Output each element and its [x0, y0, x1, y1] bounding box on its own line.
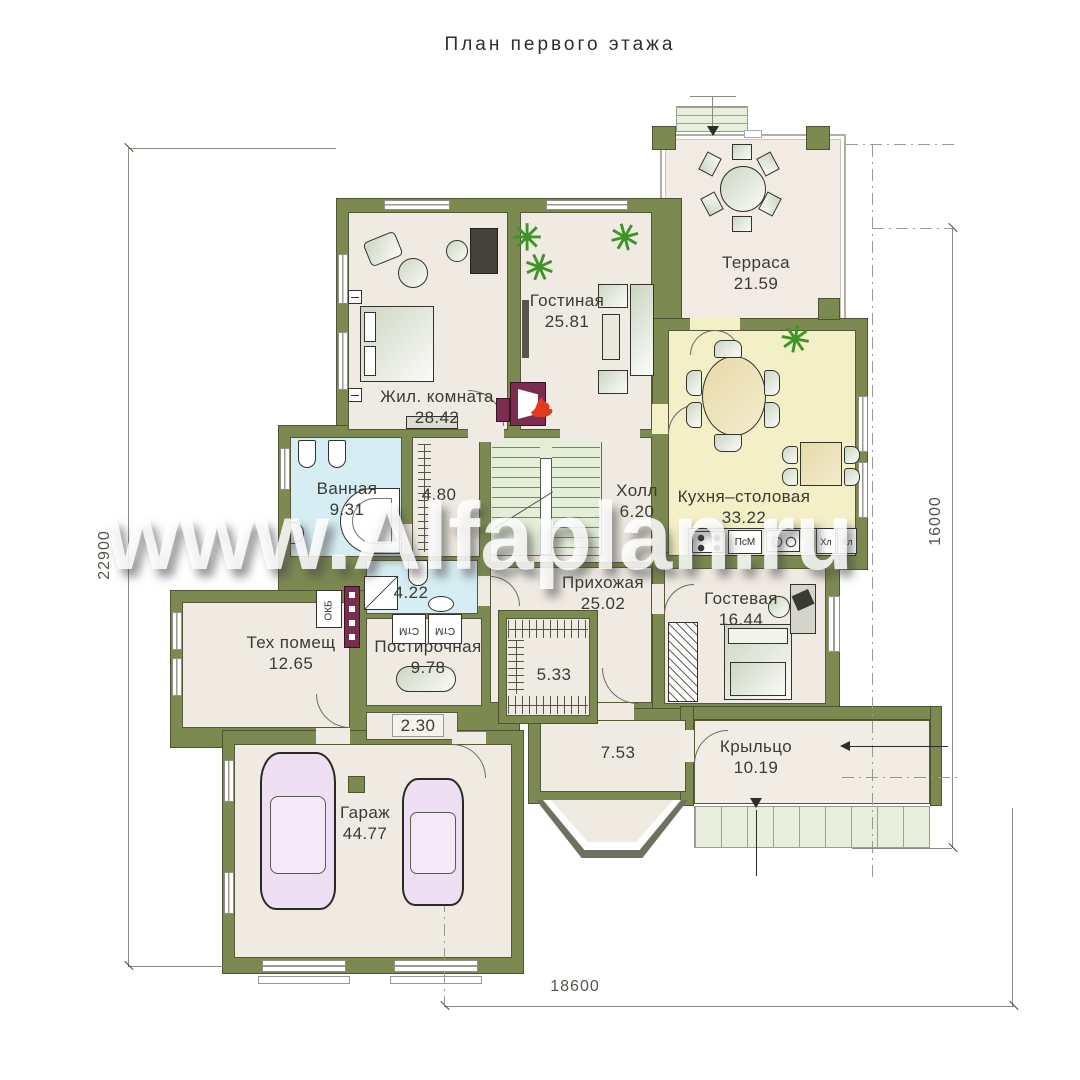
dim-ext-line — [852, 848, 952, 849]
chair — [844, 446, 860, 464]
room-name: Тех помещ — [221, 632, 361, 653]
chair — [764, 370, 780, 396]
window — [172, 658, 182, 696]
chair — [714, 434, 742, 452]
room-name: Гараж — [295, 802, 435, 823]
terrace-column — [818, 298, 840, 320]
arrow-down-icon — [750, 798, 762, 808]
nightstand — [348, 290, 362, 304]
coat-rack — [508, 620, 588, 638]
garage-door-opening — [394, 960, 478, 972]
room-name: Крыльцо — [686, 736, 826, 757]
room-area: 21.59 — [686, 273, 826, 294]
room-label-porch: Крыльцо 10.19 — [686, 736, 826, 779]
chair — [732, 216, 752, 232]
terrace-column — [652, 126, 676, 150]
nightstand — [348, 388, 362, 402]
room-area: 44.77 — [295, 823, 435, 844]
room-label-tambour-753: 7.53 — [588, 742, 648, 763]
bidet — [328, 440, 346, 468]
room-name: Постирочная — [358, 636, 498, 657]
dim-label-bottom: 18600 — [515, 978, 635, 996]
dim-ext-line — [128, 148, 336, 149]
room-area: 25.02 — [543, 593, 663, 614]
room-area: 12.65 — [221, 653, 361, 674]
roof-overhang-line — [842, 777, 960, 778]
door-gap — [452, 732, 486, 744]
porch-steps — [694, 806, 930, 848]
porch-wall-top — [680, 706, 942, 720]
guest-bench — [730, 662, 786, 696]
small-table — [800, 442, 842, 486]
room-label-living: Гостиная 25.81 — [497, 290, 637, 333]
dim-line-bottom — [444, 1006, 1014, 1007]
window — [224, 872, 234, 914]
room-name: Жил. комната — [367, 386, 507, 407]
chair — [764, 402, 780, 428]
chair — [686, 370, 702, 396]
terrace-entry-line — [712, 96, 713, 130]
window — [338, 332, 348, 390]
door-gap — [652, 404, 668, 434]
plant-icon: ✳ — [777, 320, 813, 361]
chimney-vent — [349, 592, 355, 598]
terrace-deck — [660, 134, 846, 324]
roof-overhang-line — [872, 228, 952, 229]
boiler: ОКБ — [316, 590, 342, 628]
chair — [714, 340, 742, 358]
roof-overhang-line — [846, 144, 954, 145]
dim-ext-line — [128, 966, 224, 967]
room-area: 5.33 — [524, 664, 584, 685]
room-area: 16.44 — [671, 609, 811, 630]
arrow-left-icon — [840, 741, 850, 751]
room-label-tech: Тех помещ 12.65 — [221, 632, 361, 675]
flame-icon — [528, 390, 556, 420]
window — [172, 612, 182, 650]
pillow — [364, 346, 376, 376]
dim-ext-line — [1012, 808, 1013, 1006]
terrace-entry-line — [690, 96, 736, 97]
room-label-garage: Гараж 44.77 — [295, 802, 435, 845]
window — [546, 200, 628, 210]
door-gap — [690, 318, 740, 330]
porch-wall-right — [930, 706, 942, 806]
chair — [782, 446, 798, 464]
room-label-bedroom: Жил. комната 28.42 — [367, 386, 507, 429]
window — [384, 200, 450, 210]
porch-entry-line — [850, 746, 948, 747]
room-label-terrace: Терраса 21.59 — [686, 252, 826, 295]
floor-plan: План первого этажа — [0, 0, 1080, 1080]
room-area: 28.42 — [367, 407, 507, 428]
porch-exit-line — [756, 810, 757, 876]
room-area: 7.53 — [588, 742, 648, 763]
guest-wardrobe — [668, 622, 698, 702]
window — [858, 396, 868, 452]
sofa-seat — [598, 370, 628, 394]
garage-pillar — [348, 776, 365, 793]
door-gap — [316, 728, 350, 744]
garage-door-opening — [262, 960, 346, 972]
room-name: Гостиная — [497, 290, 637, 311]
desk — [470, 228, 498, 274]
room-label-guest: Гостевая 16.44 — [671, 588, 811, 631]
room-label-closet-533: 5.33 — [524, 664, 584, 685]
terrace-wall-gap — [744, 130, 762, 138]
window — [224, 760, 234, 802]
side-table — [398, 258, 428, 288]
desk-chair — [446, 240, 468, 262]
pillow — [364, 312, 376, 342]
room-area: 2.30 — [393, 715, 443, 736]
window — [338, 254, 348, 304]
dining-table-oval — [702, 356, 766, 436]
room-label-niche-230: 2.30 — [392, 714, 444, 737]
page-title: План первого этажа — [390, 34, 730, 56]
window — [828, 596, 840, 652]
arrow-down-icon — [707, 126, 719, 136]
chair — [686, 402, 702, 428]
garage-door-apron — [258, 976, 350, 984]
coat-rack — [508, 696, 588, 714]
room-label-laundry: Постирочная 9.78 — [358, 636, 498, 679]
door-gap — [560, 425, 640, 442]
room-name: Терраса — [686, 252, 826, 273]
toilet — [298, 440, 316, 468]
chair — [732, 144, 752, 160]
terrace-column — [806, 126, 830, 150]
watermark: www.Alfaplan.ru — [105, 482, 985, 592]
room-area: 9.78 — [358, 657, 498, 678]
room-area: 10.19 — [686, 757, 826, 778]
coat-rack — [508, 640, 524, 694]
room-area: 25.81 — [497, 311, 637, 332]
boiler-label: ОКБ — [323, 600, 334, 620]
garage-door-apron — [390, 976, 482, 984]
door-gap — [598, 703, 634, 720]
